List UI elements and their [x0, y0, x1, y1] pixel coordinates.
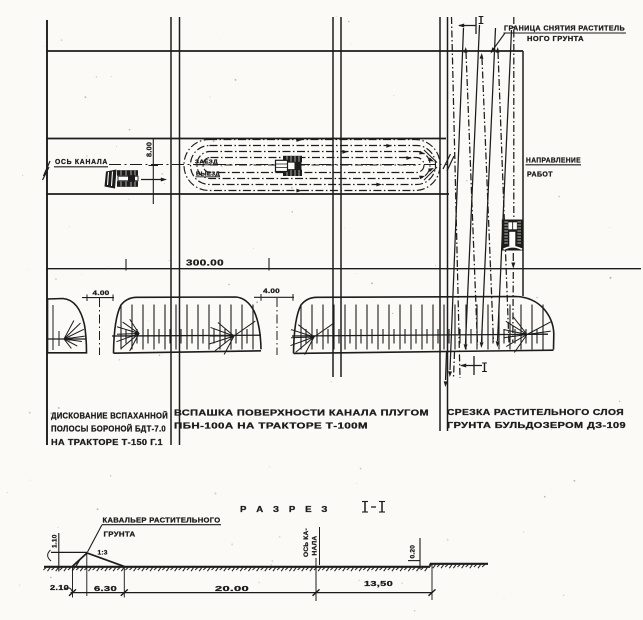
svg-text:20.00: 20.00 — [215, 586, 249, 593]
svg-text:6.30: 6.30 — [94, 586, 117, 593]
svg-text:РАБОТ: РАБОТ — [527, 172, 553, 179]
svg-text:4.00: 4.00 — [93, 290, 110, 297]
svg-text:ОСЬ КА-: ОСЬ КА- — [303, 528, 310, 557]
svg-text:НАЛА: НАЛА — [312, 536, 319, 556]
svg-text:1.10: 1.10 — [52, 534, 59, 548]
svg-text:НАПРАВЛЕНИЕ: НАПРАВЛЕНИЕ — [526, 158, 581, 165]
svg-text:ОСЬ КАНАЛА: ОСЬ КАНАЛА — [55, 157, 108, 166]
svg-text:ДИСКОВАНИЕ ВСПАХАННОЙ: ДИСКОВАНИЕ ВСПАХАННОЙ — [51, 412, 168, 421]
svg-text:ВСПАШКА ПОВЕРХНОСТИ КАНАЛА: ВСПАШКА ПОВЕРХНОСТИ КАНАЛА ПЛУГОМ — [174, 409, 429, 418]
svg-text:4.00: 4.00 — [263, 288, 280, 295]
svg-text:ПОЛОСЫ БОРОНОЙ БДТ-7.0: ПОЛОСЫ БОРОНОЙ БДТ-7.0 — [51, 425, 166, 434]
svg-text:ПБН-100А НА ТРАКТОРЕ Т-100М: ПБН-100А НА ТРАКТОРЕ Т-100М — [174, 422, 368, 431]
svg-text:ГРАНИЦА СНЯТИЯ РАСТИТЕЛЬ: ГРАНИЦА СНЯТИЯ РАСТИТЕЛЬ — [504, 26, 625, 33]
svg-text:СРЕЗКА РАСТИТЕЛЬНОГО СЛОЯ: СРЕЗКА РАСТИТЕЛЬНОГО СЛОЯ — [447, 408, 624, 417]
svg-text:300.00: 300.00 — [186, 259, 225, 268]
svg-text:НОГО ГРУНТА: НОГО ГРУНТА — [527, 36, 584, 43]
svg-text:1:3: 1:3 — [98, 549, 108, 556]
svg-text:КАВАЛЬЕР РАСТИТЕЛЬНОГО: КАВАЛЬЕР РАСТИТЕЛЬНОГО — [103, 518, 221, 525]
svg-text:НА ТРАКТОРЕ Т-150 Г.1: НА ТРАКТОРЕ Т-150 Г.1 — [51, 438, 163, 447]
svg-text:Р А З Р Е З: Р А З Р Е З — [240, 504, 331, 514]
svg-text:8.00: 8.00 — [144, 142, 153, 157]
svg-text:ГРУНТА: ГРУНТА — [104, 532, 136, 539]
svg-text:13,50: 13,50 — [364, 581, 393, 588]
svg-text:ГРУНТА БУЛЬДОЗЕРОМ ДЗ-109: ГРУНТА БУЛЬДОЗЕРОМ ДЗ-109 — [447, 421, 627, 430]
svg-text:0.20: 0.20 — [409, 545, 416, 559]
